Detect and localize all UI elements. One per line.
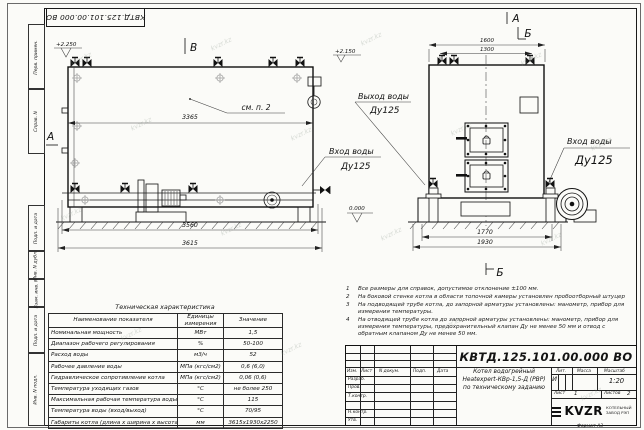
valve-icon <box>214 58 223 68</box>
notes: 1Все размеры для справок, допустимое отк… <box>346 286 632 339</box>
strip-cell-sprav-n: Справ. N <box>28 88 45 154</box>
grid-line <box>346 360 456 361</box>
tech-header: Единицы измерения <box>178 314 224 328</box>
section-label-a: А <box>46 131 54 143</box>
note-number: 1 <box>346 286 354 293</box>
table-cell: МПа (кгс/см2) <box>178 372 224 383</box>
sheet-value: 1 <box>574 391 578 397</box>
lit-label: Лит. <box>556 369 566 374</box>
svg-text:Ду125: Ду125 <box>574 153 613 167</box>
table-row: Температура уходящих газов°Сне более 250 <box>49 383 283 394</box>
valve-icon <box>71 58 80 68</box>
table-row: Расход водым3/ч52 <box>49 350 283 361</box>
sheet-label: Лист <box>554 391 565 396</box>
fitting-mark-icon <box>80 195 90 205</box>
grid-line <box>558 374 559 390</box>
table-cell: 1,5 <box>224 328 283 339</box>
grid-line <box>601 390 602 398</box>
side-view: 3365 3560 3615 +2.250 В А <box>46 38 330 252</box>
valve-icon <box>121 184 130 194</box>
table-cell: 3615х1930х2250 <box>224 417 283 428</box>
valve-icon <box>269 58 278 68</box>
grid-line <box>346 384 456 385</box>
mass-label: Масса <box>577 369 591 374</box>
inlet-label-right: Вход воды Ду125 <box>548 137 630 184</box>
table-row: Номинальная мощностьМВт1,5 <box>49 328 283 339</box>
company-logo: KVZR КОТЕЛЬНЫЙ ЗАВОД РЭП <box>550 398 634 423</box>
furnace-door-lower <box>456 160 508 192</box>
sig-razrab: Разраб. <box>348 377 365 382</box>
fitting-mark-icon <box>215 195 225 205</box>
note-text: Все размеры для справок, допустимое откл… <box>358 286 632 293</box>
strip-cell-perv-primen: Перв. примен. <box>28 24 45 90</box>
sheets-value: 2 <box>627 391 631 397</box>
svg-text:Ду125: Ду125 <box>340 162 371 172</box>
strip-cell-inv-podl: Инв. N подл. <box>28 352 45 426</box>
strip-label: Взам. инв. N <box>34 278 39 308</box>
descr-line2: Heatexpert-КВр-1,5-Д (РВР) <box>458 377 550 385</box>
note-text: На боковой стенке котла в области топочн… <box>358 294 632 301</box>
zero-elevation-mark: 0.000 <box>347 206 373 222</box>
table-cell: 0,6 (6,0) <box>224 361 283 372</box>
logo-caption-line2: ЗАВОД РЭП <box>606 411 632 415</box>
sig-utv: Утв. <box>348 418 357 423</box>
valve-icon <box>526 56 535 66</box>
table-cell: % <box>178 339 224 350</box>
table-cell: мм <box>178 417 224 428</box>
table-cell: МВт <box>178 328 224 339</box>
note-item: 1Все размеры для справок, допустимое отк… <box>346 286 632 293</box>
view-label-b-bottom: Б <box>496 267 503 279</box>
svg-text:Ду125: Ду125 <box>369 106 400 116</box>
chimney-stub <box>308 77 321 108</box>
product-description: Котел водогрейный Heatexpert-КВр-1,5-Д (… <box>458 369 550 393</box>
side-leg <box>70 207 82 222</box>
view-label-a: А <box>511 13 519 25</box>
lit-value: И <box>551 375 558 383</box>
grid-line <box>433 346 434 425</box>
note-item: 4На отводящей трубе котла до запорной ар… <box>346 317 632 338</box>
sig-tkontr: Т.контр. <box>348 394 367 399</box>
table-cell: Расход воды <box>49 350 178 361</box>
table-cell: Максимальная рабочая температура воды <box>49 395 178 406</box>
svg-text:Вход воды: Вход воды <box>329 147 374 156</box>
table-cell: м3/ч <box>178 350 224 361</box>
doc-number: КВТД.125.101.00.000 ВО <box>456 346 636 367</box>
col-podp: Подп. <box>413 369 426 374</box>
strip-label: Инв. N подл. <box>34 374 39 404</box>
valve-icon <box>296 58 305 68</box>
table-cell: 0,06 (0,6) <box>224 372 283 383</box>
side-left-stub <box>62 108 68 113</box>
pump-unit <box>136 180 186 222</box>
view-label-b: В <box>190 42 197 54</box>
col-ndocum: N докум. <box>379 369 399 374</box>
tech-table: Наименование показателя Единицы измерени… <box>48 313 283 429</box>
callout-see-p2: см. п. 2 <box>189 98 285 113</box>
descr-line1: Котел водогрейный <box>458 369 550 377</box>
svg-text:+2.250: +2.250 <box>56 42 77 48</box>
tech-header: Наименование показателя <box>49 314 178 328</box>
dim-front-top-inner: 1300 <box>480 47 494 53</box>
note-number: 3 <box>346 302 354 316</box>
note-item: 3На подводящей трубе котла, до запорной … <box>346 302 632 316</box>
fitting-mark-icon <box>215 73 225 83</box>
front-right-pipe <box>543 179 558 223</box>
side-leg <box>298 207 310 222</box>
valve-icon <box>83 58 92 68</box>
strip-label: Подп. и дата <box>34 314 39 345</box>
sig-prov: Пров. <box>348 385 361 390</box>
front-left-pipe <box>426 179 441 223</box>
table-cell: °С <box>178 406 224 417</box>
grid-line <box>551 374 636 375</box>
table-cell: не более 250 <box>224 383 283 394</box>
sheets-label: Листов <box>604 391 620 396</box>
view-label-b-top: Б <box>524 28 531 40</box>
table-cell: 52 <box>224 350 283 361</box>
grid-line <box>410 346 411 425</box>
svg-text:0.000: 0.000 <box>349 206 365 212</box>
blower-fan <box>557 189 597 223</box>
tech-header: Значение <box>224 314 283 328</box>
scale-value: 1:20 <box>597 377 636 385</box>
col-data: Дата <box>437 369 448 374</box>
grid-line <box>346 417 456 418</box>
table-cell: 50-100 <box>224 339 283 350</box>
table-row: Габариты котла (длина х ширина х высота)… <box>49 417 283 428</box>
grid-line <box>565 374 566 390</box>
table-cell: Гидравлическое сопротивление котла <box>49 372 178 383</box>
strip-cell-podp-data-1: Подп. и дата <box>28 205 45 252</box>
table-row: Максимальная рабочая температура воды°С1… <box>49 395 283 406</box>
note-number: 2 <box>346 294 354 301</box>
table-cell: Рабочее давление воды <box>49 361 178 372</box>
grid-line <box>346 401 456 402</box>
table-cell: 115 <box>224 395 283 406</box>
table-row: Рабочее давление водыМПа (кгс/см2)0,6 (6… <box>49 361 283 372</box>
valve-icon <box>438 56 447 66</box>
strip-label: Подп. и дата <box>34 213 39 244</box>
dim-side-overall: 3615 <box>182 240 198 247</box>
valve-icon <box>189 184 198 194</box>
fitting-mark-icon <box>70 158 80 168</box>
furnace-door-upper <box>456 123 508 157</box>
table-cell: Температура воды (вход/выход) <box>49 406 178 417</box>
logo-caption: КОТЕЛЬНЫЙ ЗАВОД РЭП <box>606 406 632 415</box>
table-row: Температура воды (вход/выход)°С70/95 <box>49 406 283 417</box>
format-label: Формат А3 <box>577 424 603 429</box>
logo-text: KVZR <box>564 404 603 418</box>
elevation-mark-front: +2.150 <box>333 49 361 62</box>
descr-line3: по техническому заданию <box>458 385 550 393</box>
elevation-mark-side: +2.250 <box>54 42 82 57</box>
col-izm: Изм. <box>347 369 357 374</box>
strip-cell-podp-data-2: Подп. и дата <box>28 306 45 354</box>
table-cell: Номинальная мощность <box>49 328 178 339</box>
table-cell: МПа (кгс/см2) <box>178 361 224 372</box>
grid-line <box>572 367 573 390</box>
table-cell: Температура уходящих газов <box>49 383 178 394</box>
col-list: Лист <box>361 369 372 374</box>
note-number: 4 <box>346 317 354 338</box>
door-latch <box>456 174 467 177</box>
svg-text:+2.150: +2.150 <box>335 49 356 55</box>
logo-flag-icon <box>552 405 561 417</box>
grid-line <box>346 353 456 354</box>
svg-text:см. п. 2: см. п. 2 <box>242 103 271 112</box>
note-text: На подводящей трубе котла, до запорной а… <box>358 302 632 316</box>
strip-label: Перв. примен. <box>34 40 39 75</box>
strip-label: Справ. N <box>34 110 39 131</box>
valve-icon <box>71 184 80 194</box>
tech-table-title: Техническая характеристика <box>48 303 282 311</box>
door-latch <box>456 137 467 140</box>
inlet-label-left: Вход воды Ду125 <box>302 147 381 186</box>
strip-cell-vzam-inv: Взам. инв. N <box>28 278 45 308</box>
table-cell: °С <box>178 395 224 406</box>
fitting-mark-icon <box>292 73 302 83</box>
scale-label: Масштаб <box>604 369 625 374</box>
dim-front-top-outer: 1600 <box>480 38 494 44</box>
table-cell: 70/95 <box>224 406 283 417</box>
boiler-drawing: 3365 3560 3615 +2.250 В А <box>44 8 636 300</box>
valve-icon <box>450 56 459 66</box>
table-row: Гидравлическое сопротивление котлаМПа (к… <box>49 372 283 383</box>
table-cell: °С <box>178 383 224 394</box>
note-item: 2На боковой стенке котла в области топоч… <box>346 294 632 301</box>
inspection-window <box>520 97 538 113</box>
side-left-stub <box>62 148 68 153</box>
svg-text:Выход воды: Выход воды <box>358 92 409 101</box>
table-cell: Диапазон рабочего регулирования <box>49 339 178 350</box>
svg-text:Вход воды: Вход воды <box>567 137 612 146</box>
grid-line <box>374 346 375 425</box>
dim-front-bottom-outer: 1930 <box>477 239 493 246</box>
sig-nkontr: Н.контр. <box>348 410 368 415</box>
strip-label: Инв. N дубл. <box>34 250 39 280</box>
fitting-mark-icon <box>72 73 82 83</box>
dim-front-bottom-inner: 1770 <box>477 229 493 236</box>
dim-side-inner: 3365 <box>182 114 198 121</box>
drawing-sheet: Перв. примен. Справ. N Подп. и дата Инв.… <box>0 0 644 430</box>
strip-cell-inv-dubl: Инв. N дубл. <box>28 250 45 280</box>
note-text: На отводящей трубе котла до запорной арм… <box>358 317 632 338</box>
table-cell: Габариты котла (длина х ширина х высота) <box>49 417 178 428</box>
dim-side-base: 3560 <box>182 222 198 229</box>
base-frame <box>418 198 566 222</box>
table-row: Диапазон рабочего регулирования%50-100 <box>49 339 283 350</box>
